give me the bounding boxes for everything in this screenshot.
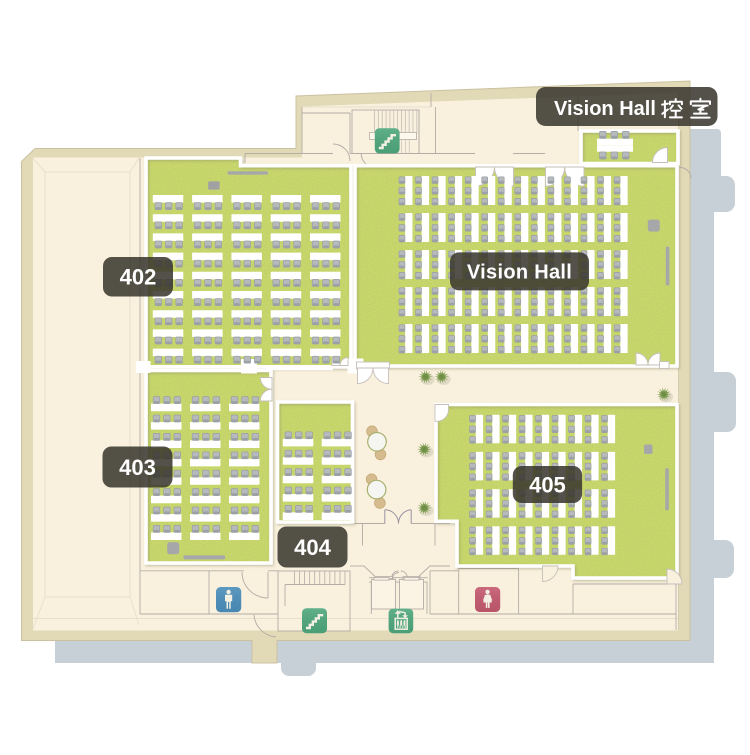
svg-text:403: 403 <box>119 455 156 480</box>
svg-text:402: 402 <box>120 265 157 290</box>
svg-text:405: 405 <box>529 472 566 497</box>
svg-text:Vision Hall: Vision Hall <box>467 262 572 284</box>
svg-text:404: 404 <box>294 535 331 560</box>
svg-text:Vision Hall: Vision Hall <box>554 98 656 120</box>
